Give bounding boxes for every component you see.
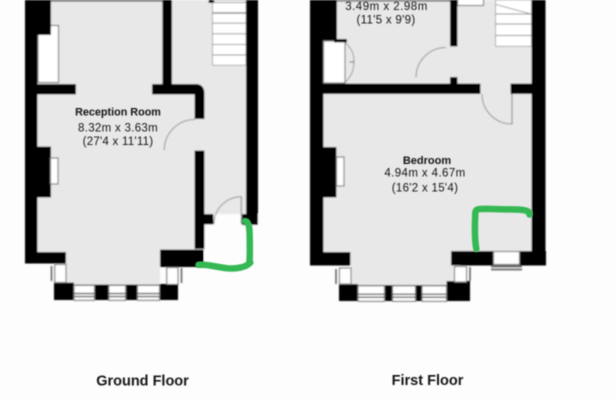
svg-text:(11'5 x 9'9): (11'5 x 9'9) — [357, 15, 416, 27]
svg-text:(16'2 x 15'4): (16'2 x 15'4) — [392, 183, 458, 195]
svg-text:Ground Floor: Ground Floor — [96, 374, 189, 390]
svg-text:First Floor: First Floor — [392, 373, 464, 389]
svg-text:4.94m x 4.67m: 4.94m x 4.67m — [384, 168, 465, 180]
svg-text:Reception Room: Reception Room — [75, 107, 161, 119]
svg-text:(27'4 x 11'11): (27'4 x 11'11) — [83, 136, 154, 148]
svg-text:8.32m x 3.63m: 8.32m x 3.63m — [78, 123, 158, 135]
svg-text:Bedroom: Bedroom — [403, 155, 452, 167]
svg-text:3.49m x 2.98m: 3.49m x 2.98m — [345, 1, 428, 13]
